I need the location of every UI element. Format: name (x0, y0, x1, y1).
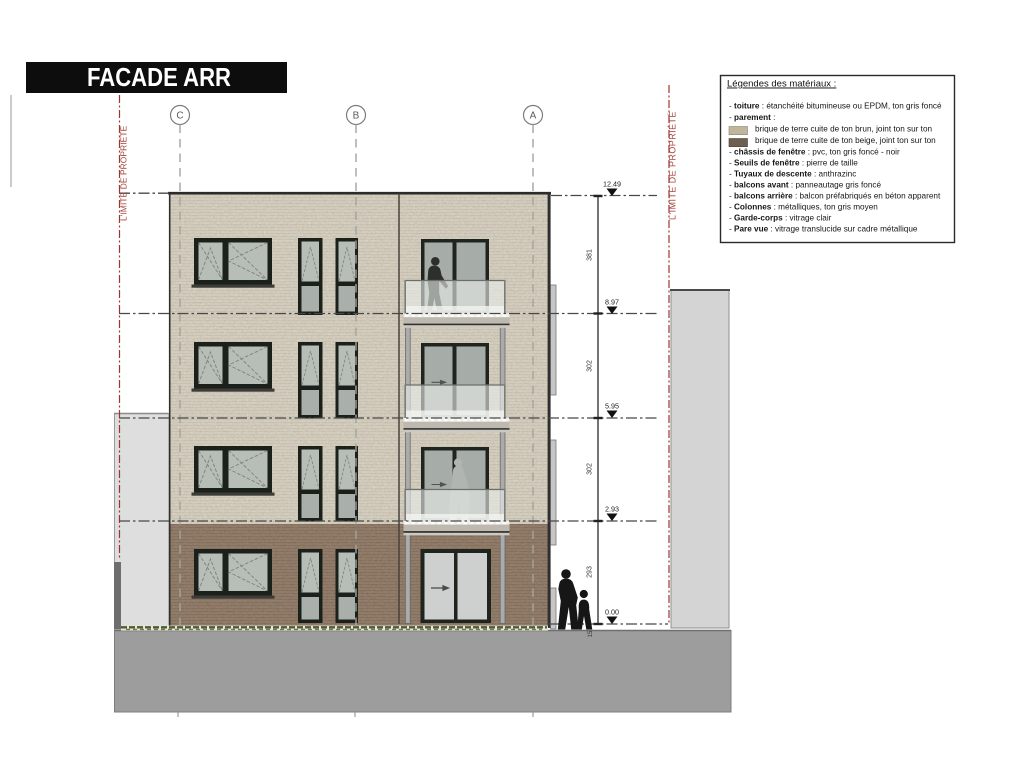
svg-text:- toiture : étanchéité bitumin: - toiture : étanchéité bitumineuse ou EP… (729, 102, 942, 111)
svg-text:5.95: 5.95 (605, 402, 619, 411)
svg-text:C: C (176, 111, 183, 122)
svg-text:12.49: 12.49 (603, 180, 621, 189)
svg-text:L'IMITE DE PROPRIÉTÉ: L'IMITE DE PROPRIÉTÉ (119, 125, 129, 221)
svg-text:A: A (530, 111, 537, 122)
svg-text:15: 15 (588, 630, 594, 637)
svg-text:brique de terre cuite de ton b: brique de terre cuite de ton beige, join… (755, 136, 936, 145)
svg-text:- Tuyaux de descente : anthraz: - Tuyaux de descente : anthrazinc (729, 170, 856, 179)
svg-text:FACADE ARR: FACADE ARR (87, 62, 231, 92)
svg-text:- Pare vue : vitrage transluci: - Pare vue : vitrage translucide sur cad… (729, 225, 918, 234)
svg-text:8.97: 8.97 (605, 298, 619, 307)
svg-text:- Colonnes : métalliques, ton: - Colonnes : métalliques, ton gris moyen (729, 203, 878, 212)
svg-text:- châssis de fenêtre : pvc, to: - châssis de fenêtre : pvc, ton gris fon… (729, 148, 900, 157)
svg-text:381: 381 (587, 249, 594, 261)
svg-text:Légendes des matériaux :: Légendes des matériaux : (727, 79, 836, 90)
svg-text:brique de terre cuite de ton b: brique de terre cuite de ton brun, joint… (755, 125, 932, 134)
svg-text:- Seuils de fenêtre : pierre d: - Seuils de fenêtre : pierre de taille (729, 159, 858, 168)
svg-text:0.00: 0.00 (605, 608, 619, 617)
svg-text:- parement :: - parement : (729, 113, 775, 122)
svg-text:B: B (353, 111, 360, 122)
svg-text:- balcons avant : panneautage: - balcons avant : panneautage gris foncé (729, 181, 881, 190)
svg-text:2.93: 2.93 (605, 505, 619, 514)
svg-text:302: 302 (587, 360, 594, 372)
svg-text:- Garde-corps : vitrage clair: - Garde-corps : vitrage clair (729, 214, 832, 223)
svg-text:302: 302 (587, 463, 594, 475)
svg-text:L'IMITE DE PROPRIÉTÉ: L'IMITE DE PROPRIÉTÉ (668, 111, 678, 220)
svg-text:293: 293 (587, 566, 594, 578)
svg-text:- balcons arrière : balcon pré: - balcons arrière : balcon préfabriqués … (729, 192, 941, 201)
